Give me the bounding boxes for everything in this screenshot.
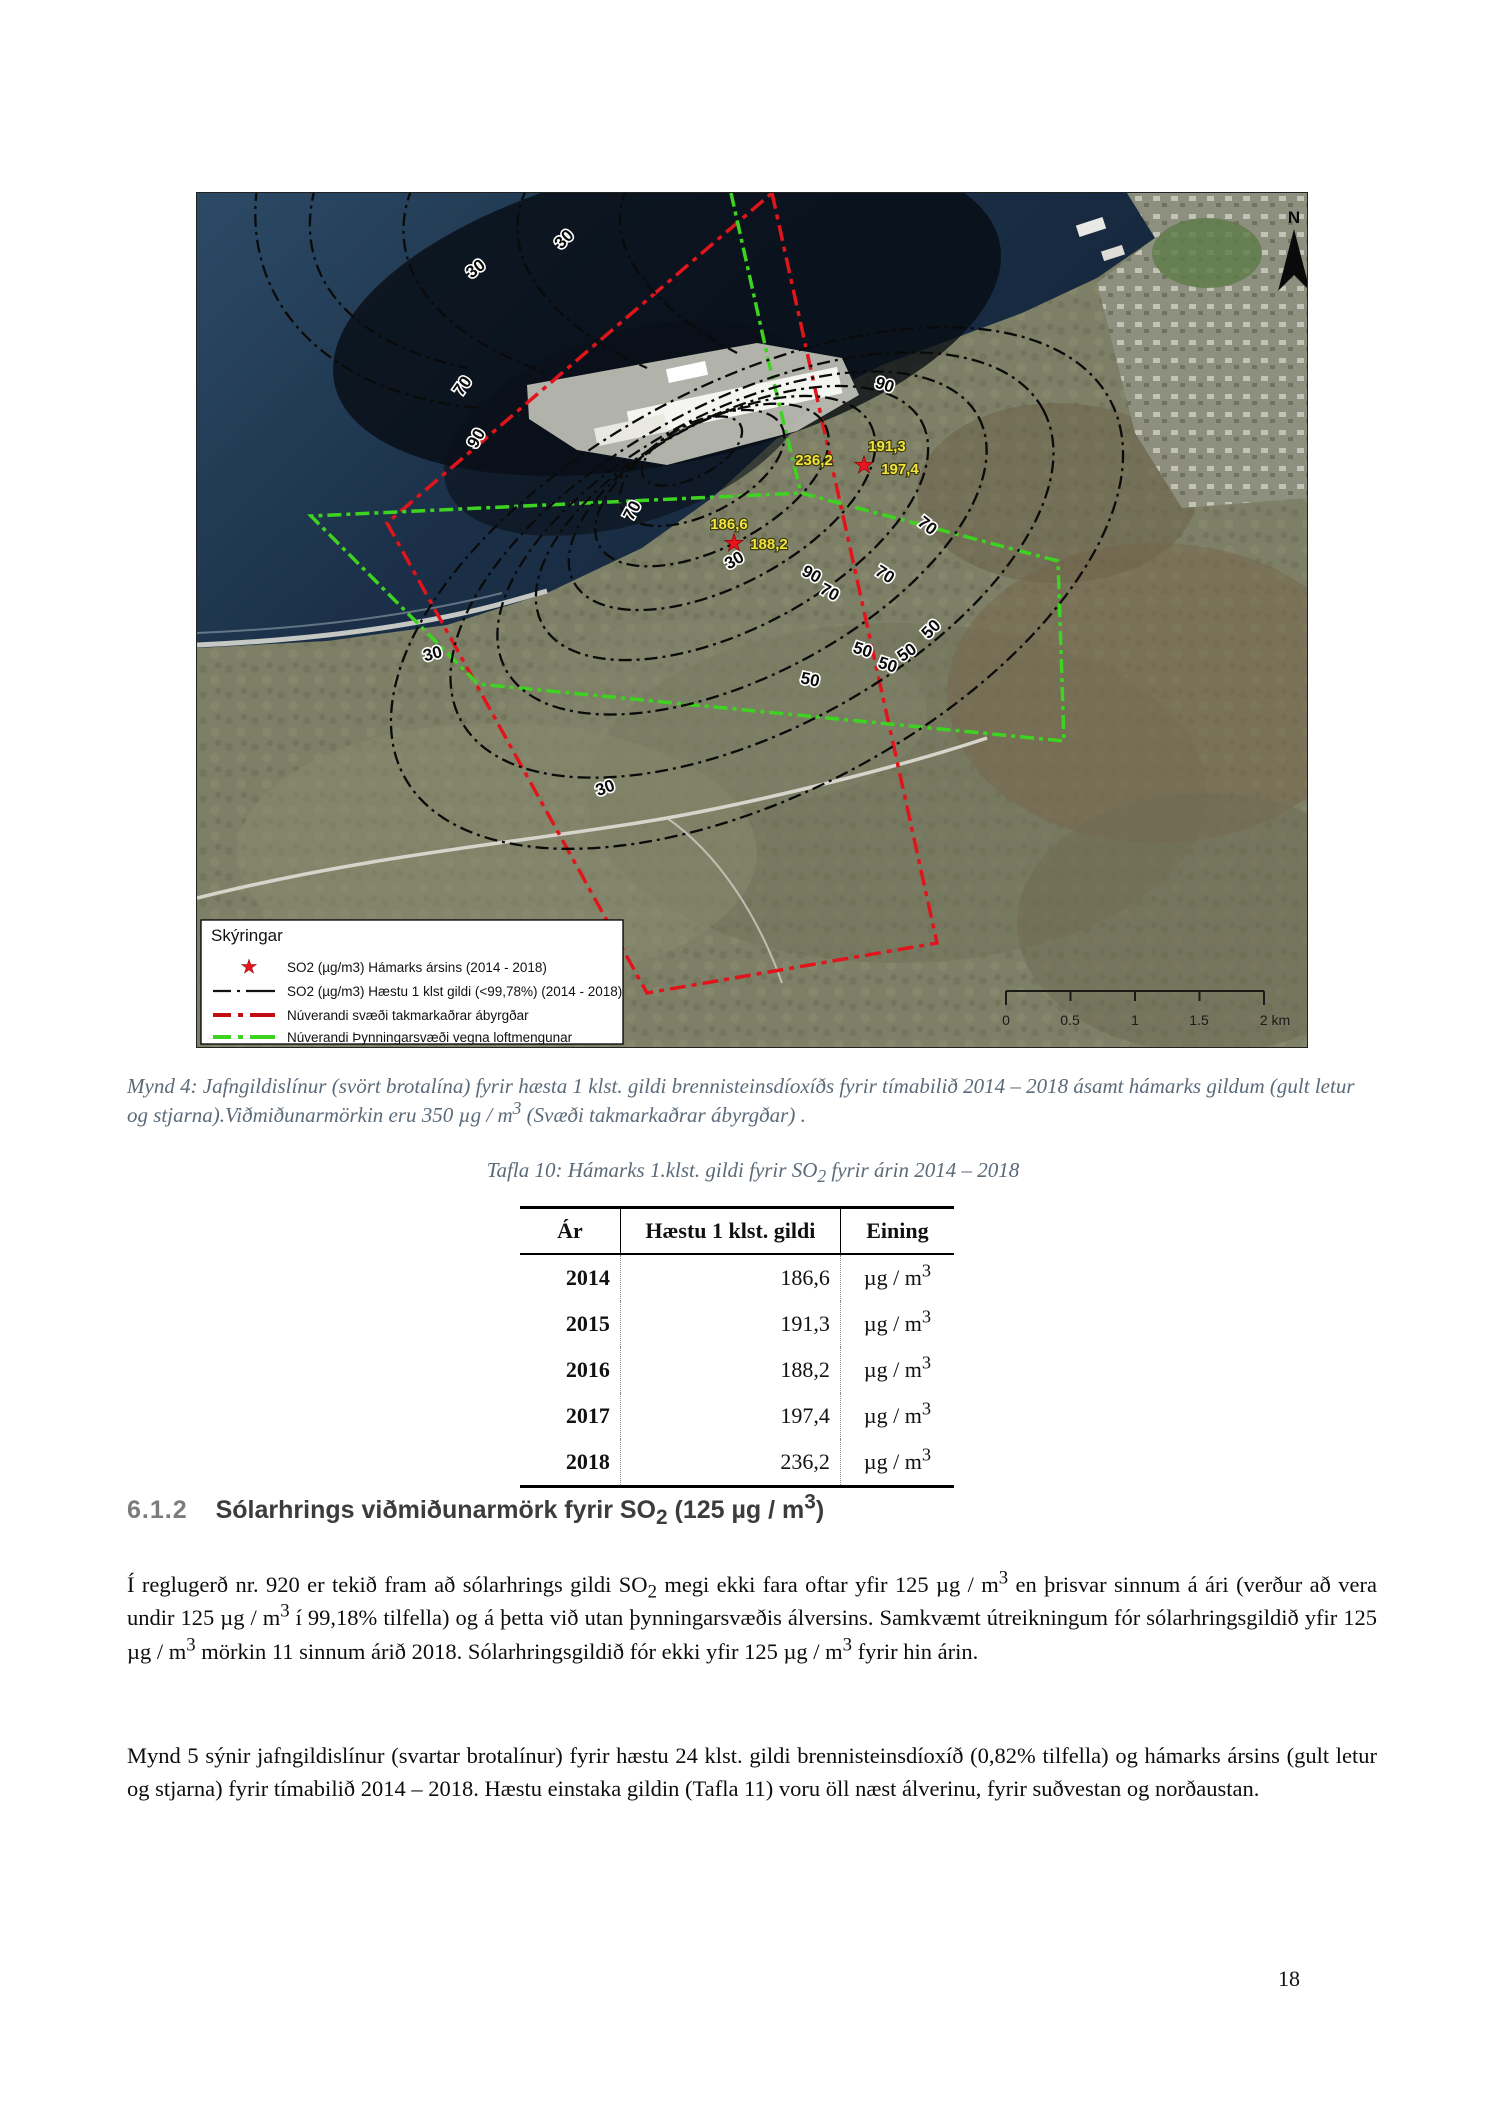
svg-text:236,2: 236,2 — [795, 452, 833, 469]
table-header-row: Ár Hæstu 1 klst. gildi Eining — [520, 1208, 954, 1255]
svg-text:188,2: 188,2 — [750, 536, 788, 553]
table-row: 2018 236,2 µg / m3 — [520, 1439, 954, 1487]
section-heading: 6.1.2Sólarhrings viðmiðunarmörk fyrir SO… — [127, 1496, 1379, 1525]
figure-caption: Mynd 4: Jafngildislínur (svört brotalína… — [127, 1072, 1379, 1130]
body-paragraph-2: Mynd 5 sýnir jafngildislínur (svartar br… — [127, 1739, 1377, 1806]
page-number: 18 — [1278, 1966, 1300, 1992]
section-number: 6.1.2 — [127, 1496, 188, 1524]
col-header-year: Ár — [520, 1208, 620, 1255]
svg-text:SO2 (µg/m3) Hæstu 1 klst gildi: SO2 (µg/m3) Hæstu 1 klst gildi (<99,78%)… — [287, 984, 622, 999]
svg-text:Núverandi svæði takmarkaðrar á: Núverandi svæði takmarkaðrar ábyrgðar — [287, 1008, 529, 1023]
svg-text:197,4: 197,4 — [881, 461, 919, 478]
svg-text:50: 50 — [799, 668, 821, 691]
svg-text:N: N — [1288, 208, 1300, 227]
legend-star-icon: ★ — [240, 957, 257, 978]
map-legend: Skýringar ★ SO2 (µg/m3) Hámarks ársins (… — [201, 920, 623, 1045]
map-figure: 30 30 90 70 70 90 70 70 50 50 50 50 50 7… — [196, 192, 1308, 1048]
col-header-unit: Eining — [840, 1208, 954, 1255]
body-paragraph-1: Í reglugerð nr. 920 er tekið fram að sól… — [127, 1568, 1377, 1669]
max-values-table: Ár Hæstu 1 klst. gildi Eining 2014 186,6… — [520, 1206, 954, 1488]
table-row: 2016 188,2 µg / m3 — [520, 1347, 954, 1393]
report-page: 30 30 90 70 70 90 70 70 50 50 50 50 50 7… — [0, 0, 1500, 2122]
svg-text:0: 0 — [1002, 1012, 1010, 1028]
col-header-value: Hæstu 1 klst. gildi — [620, 1208, 840, 1255]
max-star-icon: ★ — [853, 453, 875, 479]
legend-title: Skýringar — [211, 926, 283, 945]
svg-text:SO2 (µg/m3) Hámarks ársins (20: SO2 (µg/m3) Hámarks ársins (2014 - 2018) — [287, 960, 547, 975]
caption-text-end: (Svæði takmarkaðrar ábyrgðar) . — [521, 1103, 805, 1127]
table-row: 2014 186,6 µg / m3 — [520, 1254, 954, 1301]
svg-text:0.5: 0.5 — [1060, 1012, 1080, 1028]
table-row: 2017 197,4 µg / m3 — [520, 1393, 954, 1439]
max-star-icon: ★ — [723, 531, 745, 557]
satellite-map: 30 30 90 70 70 90 70 70 50 50 50 50 50 7… — [197, 193, 1307, 1047]
table-row: 2015 191,3 µg / m3 — [520, 1301, 954, 1347]
svg-text:2 km: 2 km — [1260, 1012, 1290, 1028]
svg-text:Núverandi Þynningarsvæði vegna: Núverandi Þynningarsvæði vegna loftmengu… — [287, 1030, 573, 1045]
svg-text:1: 1 — [1131, 1012, 1139, 1028]
svg-text:1.5: 1.5 — [1189, 1012, 1209, 1028]
table-title: Tafla 10: Hámarks 1.klst. gildi fyrir SO… — [127, 1158, 1379, 1183]
